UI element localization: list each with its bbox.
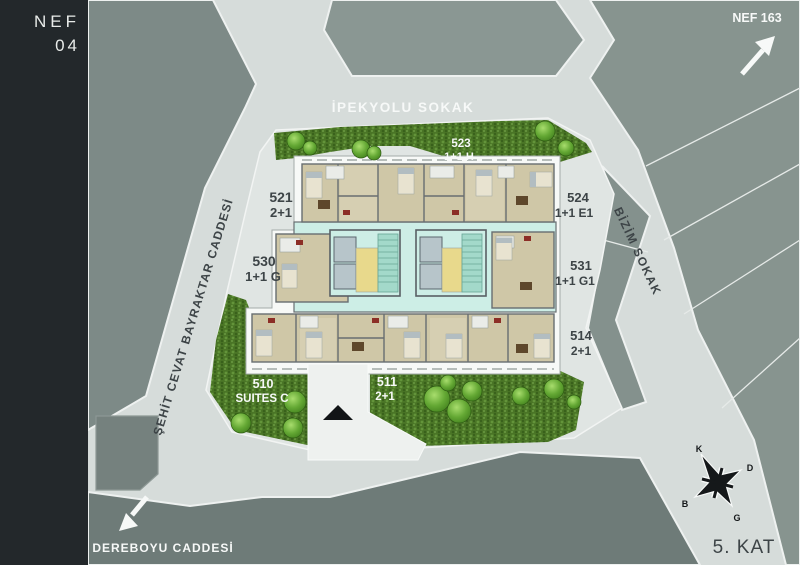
bathroom <box>388 316 408 328</box>
site-plan-svg: İPEKYOLU SOKAK ŞEHİT CEVAT BAYRAKTAR CAD… <box>0 0 800 565</box>
svg-text:2+1: 2+1 <box>375 391 395 403</box>
floor-label: 5. KAT <box>713 537 776 558</box>
bathroom <box>430 166 454 178</box>
street-label-bottom-left: DEREBOYU CADDESİ <box>92 540 233 555</box>
svg-text:514: 514 <box>570 328 592 343</box>
street-label-top: İPEKYOLU SOKAK <box>332 100 475 115</box>
svg-text:530: 530 <box>252 253 276 269</box>
bathroom <box>472 316 488 328</box>
core-2 <box>416 230 486 296</box>
unit-label-521: 521 2+1 <box>269 189 293 220</box>
svg-text:2+1: 2+1 <box>270 205 292 220</box>
svg-text:531: 531 <box>570 258 592 273</box>
svg-text:2+1: 2+1 <box>571 344 592 358</box>
project-code-line1: NEF <box>34 12 80 31</box>
bathroom <box>498 166 514 178</box>
project-code-line2: 04 <box>55 36 80 55</box>
compass-east-label: D <box>747 463 754 473</box>
block-footprint <box>96 416 158 490</box>
compass-north-label: K <box>696 444 703 454</box>
svg-text:511: 511 <box>377 375 397 389</box>
compass-west-label: B <box>682 499 689 509</box>
svg-text:SUITES C: SUITES C <box>235 393 288 405</box>
project-sidebar <box>0 0 88 565</box>
svg-text:1+1 H: 1+1 H <box>444 151 474 163</box>
svg-text:524: 524 <box>567 190 589 205</box>
svg-text:1+1 G1: 1+1 G1 <box>555 274 595 288</box>
svg-text:521: 521 <box>269 189 293 205</box>
site-plan-page: İPEKYOLU SOKAK ŞEHİT CEVAT BAYRAKTAR CAD… <box>0 0 800 565</box>
bathroom <box>300 316 318 328</box>
block-top-middle <box>324 0 584 76</box>
svg-text:1+1 G: 1+1 G <box>245 269 281 284</box>
svg-text:523: 523 <box>451 138 470 150</box>
offsite-label: NEF 163 <box>732 11 781 25</box>
svg-text:1+1 E1: 1+1 E1 <box>555 206 594 220</box>
svg-text:510: 510 <box>253 377 274 391</box>
core-1 <box>330 230 400 296</box>
compass-south-label: G <box>733 513 740 523</box>
bathroom <box>326 166 344 179</box>
